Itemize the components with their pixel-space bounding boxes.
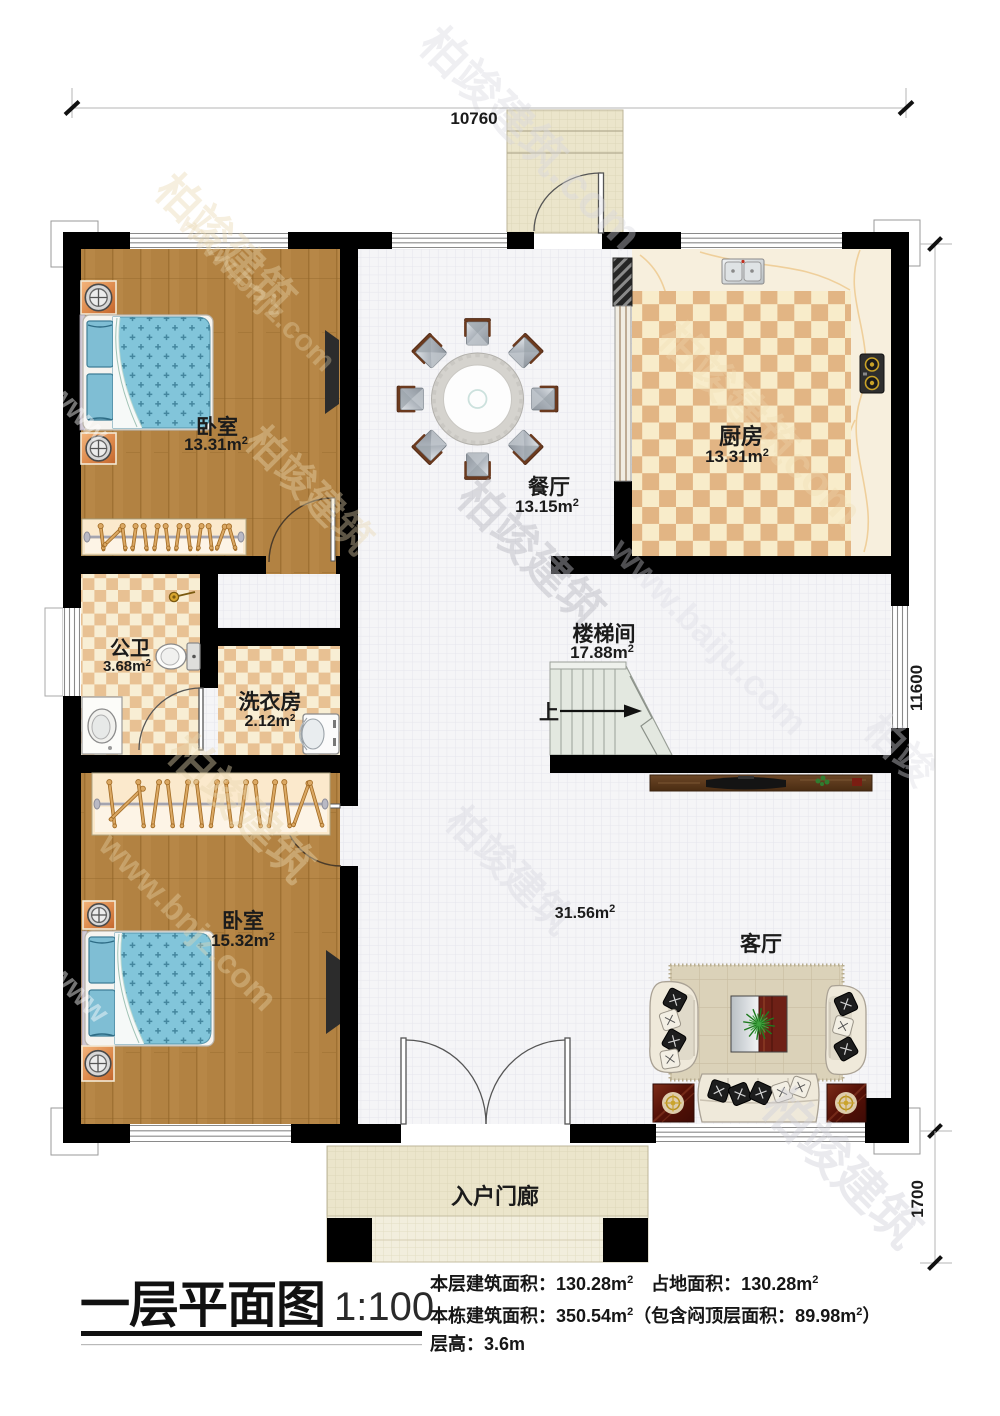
svg-text:卧室: 卧室 [222,909,264,933]
svg-text:13.31m2: 13.31m2 [705,447,769,466]
svg-text:入户门廊: 入户门廊 [451,1184,539,1209]
svg-text:本层建筑面积：130.28m2 占地面积：130.28m2: 本层建筑面积：130.28m2 占地面积：130.28m2 [430,1273,818,1294]
svg-text:3.68m2: 3.68m2 [103,658,152,675]
svg-text:15.32m2: 15.32m2 [211,931,275,950]
svg-text:一层平面图: 一层平面图 [80,1277,325,1333]
svg-text:31.56m2: 31.56m2 [555,903,615,922]
svg-text:厨房: 厨房 [719,424,763,449]
svg-text:1700: 1700 [908,1180,927,1218]
svg-text:本栋建筑面积：350.54m2（包含闷顶层面积：89.98m: 本栋建筑面积：350.54m2（包含闷顶层面积：89.98m2） [430,1305,880,1326]
svg-text:13.31m2: 13.31m2 [184,435,248,454]
svg-text:1:100: 1:100 [334,1285,434,1329]
svg-text:层高：3.6m: 层高：3.6m [430,1333,525,1354]
svg-text:餐厅: 餐厅 [528,475,570,499]
svg-text:13.15m2: 13.15m2 [515,497,579,516]
svg-text:2.12m2: 2.12m2 [245,713,296,730]
svg-text:17.88m2: 17.88m2 [570,643,634,662]
svg-text:10760: 10760 [450,109,497,128]
svg-text:上: 上 [539,701,559,724]
svg-text:11600: 11600 [907,665,926,711]
svg-text:客厅: 客厅 [740,932,782,956]
svg-text:公卫: 公卫 [110,637,150,660]
svg-text:洗衣房: 洗衣房 [239,690,302,714]
